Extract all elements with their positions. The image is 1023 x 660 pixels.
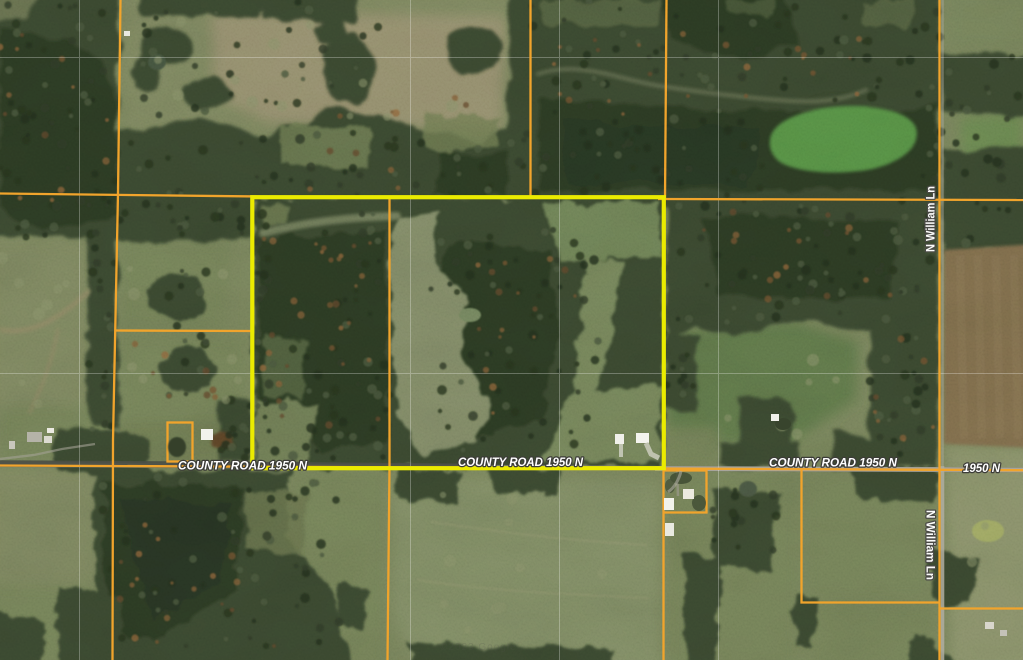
svg-text:COUNTY ROAD 1950 N: COUNTY ROAD 1950 N — [769, 456, 898, 470]
svg-text:©2023 Google: ©2023 Google — [440, 642, 517, 653]
svg-text:N William Ln: N William Ln — [924, 186, 938, 252]
svg-text:1950 N: 1950 N — [963, 461, 1001, 475]
svg-text:N William Ln: N William Ln — [924, 510, 938, 580]
svg-text:COUNTY ROAD 1950 N: COUNTY ROAD 1950 N — [178, 459, 308, 473]
svg-text:COUNTY ROAD 1950 N: COUNTY ROAD 1950 N — [458, 455, 584, 469]
